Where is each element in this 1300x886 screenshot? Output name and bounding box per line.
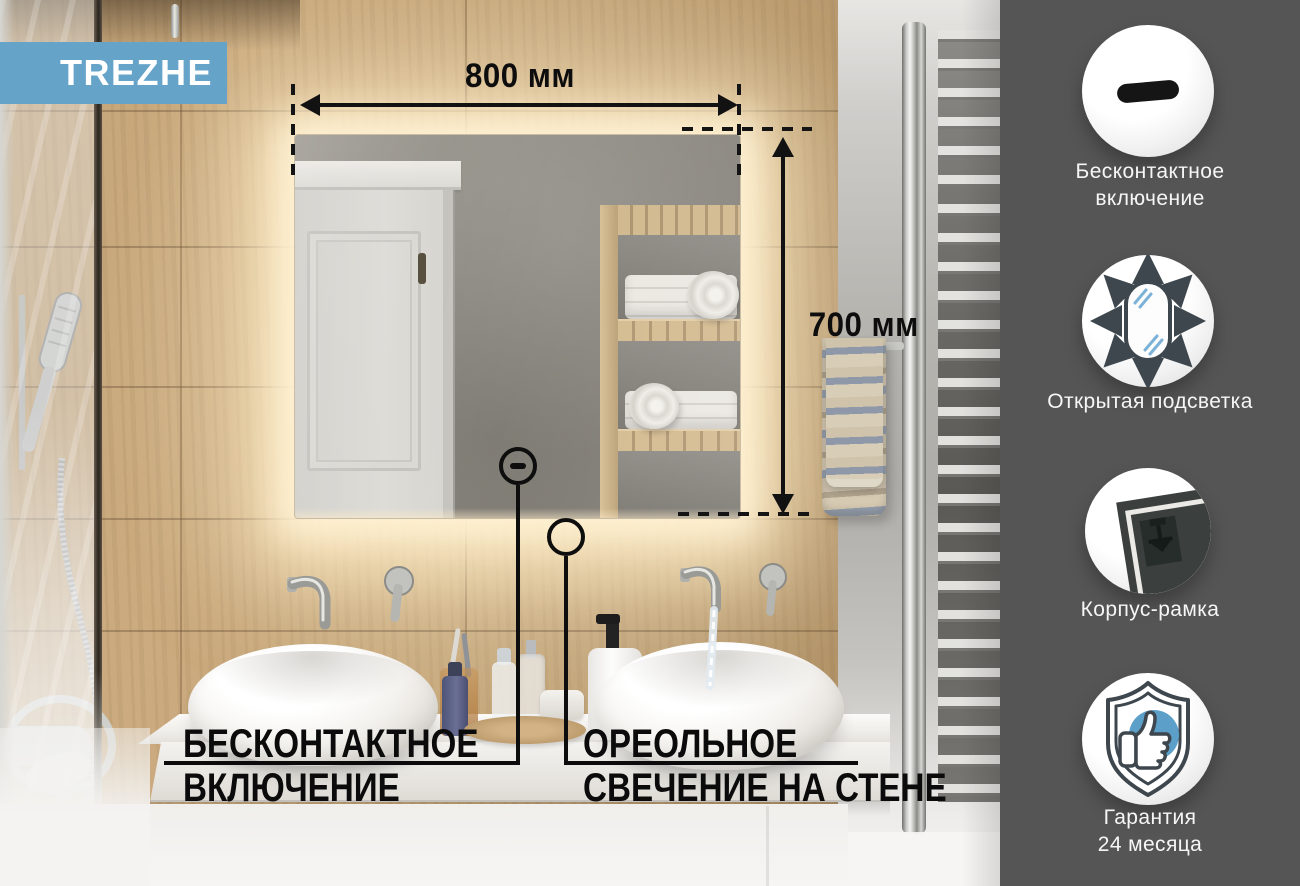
callout-left-line1: БЕСКОНТАКТНОЕ bbox=[183, 724, 479, 764]
callout-right-underline bbox=[564, 761, 858, 765]
features-sidebar: Бесконтактное включение bbox=[1000, 0, 1300, 886]
brand-banner: TREZHE bbox=[0, 42, 227, 104]
frame-body-icon bbox=[1085, 468, 1211, 594]
bathroom-photo: 800 мм 700 мм БЕСКОНТАКТНОЕ ВКЛЮЧЕНИЕ ОР… bbox=[0, 0, 1000, 886]
arrow-head bbox=[772, 137, 794, 157]
dimension-dash-line bbox=[682, 127, 812, 131]
feature-label-frame: Корпус-рамка bbox=[1000, 596, 1300, 623]
callout-line-left bbox=[516, 485, 520, 763]
width-dimension-arrow bbox=[300, 94, 738, 116]
callout-right-line2: СВЕЧЕНИЕ НА СТЕНЕ bbox=[583, 768, 947, 808]
open-backlight-icon bbox=[1082, 255, 1214, 387]
feature-badge-touch bbox=[1082, 25, 1214, 157]
arrow-head bbox=[718, 94, 738, 116]
height-dimension-arrow bbox=[772, 137, 794, 514]
product-card: 800 мм 700 мм БЕСКОНТАКТНОЕ ВКЛЮЧЕНИЕ ОР… bbox=[0, 0, 1300, 886]
feature-badge-backlight bbox=[1082, 255, 1214, 387]
brand-logo-text: TREZHE bbox=[60, 52, 213, 94]
touch-sensor-icon bbox=[1082, 25, 1214, 157]
feature-label-warranty: Гарантия 24 месяца bbox=[1000, 804, 1300, 858]
width-dimension-label: 800 мм bbox=[391, 57, 649, 96]
feature-badge-warranty bbox=[1082, 673, 1214, 805]
dimension-dash-line bbox=[291, 84, 295, 178]
height-dimension-label: 700 мм bbox=[809, 306, 919, 345]
callout-left-line2: ВКЛЮЧЕНИЕ bbox=[183, 768, 400, 808]
warranty-shield-icon bbox=[1082, 673, 1214, 805]
feature-label-touch: Бесконтактное включение bbox=[1000, 158, 1300, 212]
arrow-head bbox=[772, 494, 794, 514]
callout-left-underline bbox=[164, 761, 520, 765]
wall-faucets bbox=[0, 0, 1000, 886]
arrow-head bbox=[300, 94, 320, 116]
feature-label-backlight: Открытая подсветка bbox=[1000, 388, 1300, 415]
touch-sensor-mark bbox=[510, 463, 526, 469]
callout-line-right bbox=[564, 556, 568, 763]
halo-callout-circle bbox=[547, 518, 585, 556]
photo-edge-shadow bbox=[962, 0, 1000, 886]
feature-badge-frame bbox=[1085, 468, 1211, 594]
arrow-shaft bbox=[781, 151, 785, 500]
arrow-shaft bbox=[314, 103, 724, 107]
callout-right-line1: ОРЕОЛЬНОЕ bbox=[583, 724, 797, 764]
